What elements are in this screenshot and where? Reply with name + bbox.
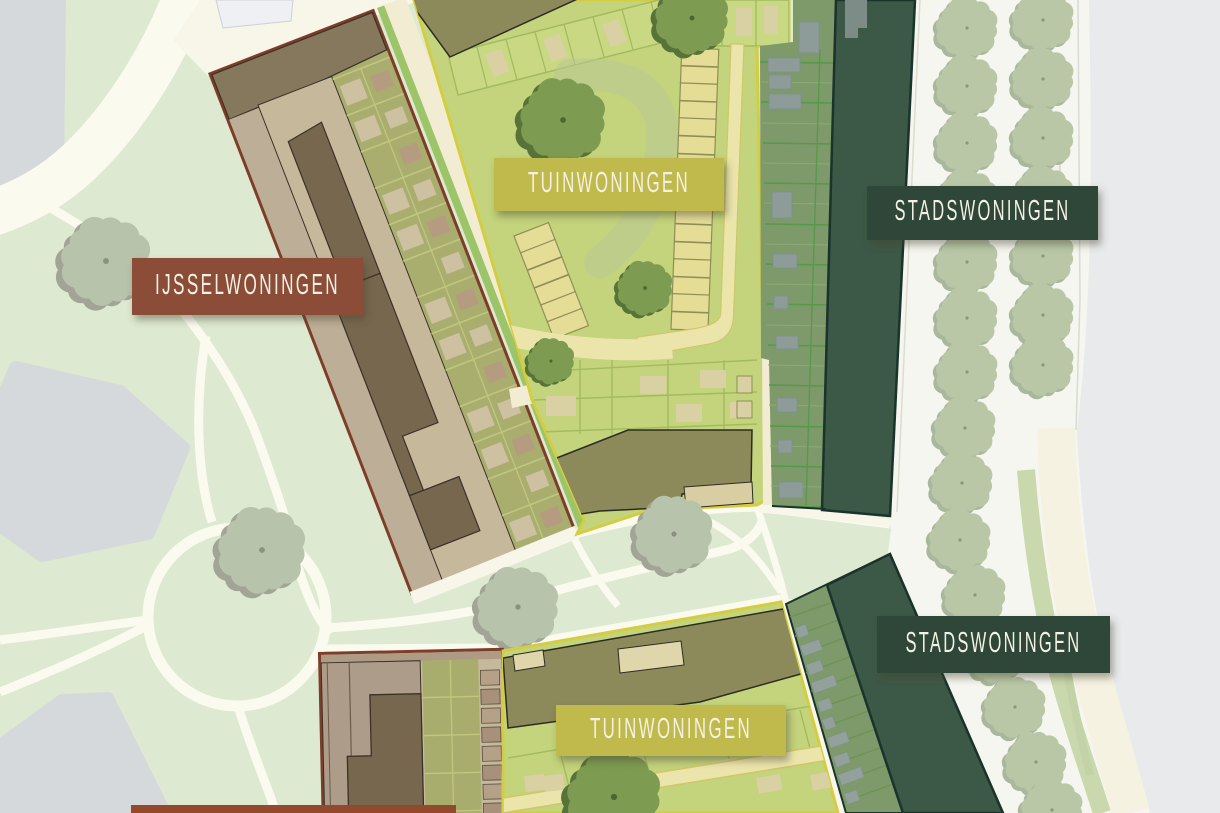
svg-text:STADSWONINGEN: STADSWONINGEN	[906, 627, 1082, 659]
svg-text:IJSSELWONINGEN: IJSSELWONINGEN	[155, 269, 340, 301]
svg-text:STADSWONINGEN: STADSWONINGEN	[895, 195, 1071, 227]
svg-text:TUINWONINGEN: TUINWONINGEN	[590, 713, 752, 745]
svg-text:TUINWONINGEN: TUINWONINGEN	[528, 167, 690, 199]
